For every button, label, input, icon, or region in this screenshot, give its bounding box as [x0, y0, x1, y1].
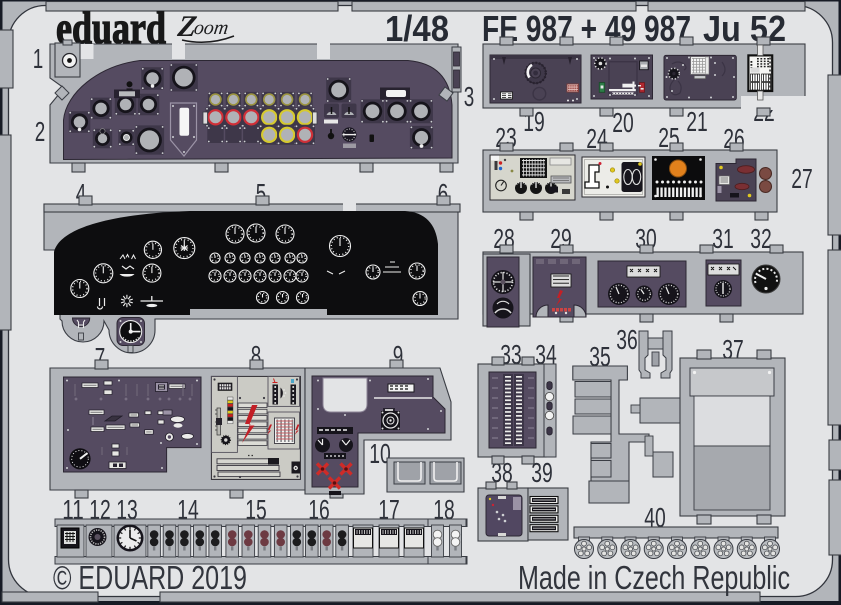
svg-text:3: 3 — [464, 81, 475, 112]
svg-text:2: 2 — [35, 116, 46, 147]
svg-text:Ju 52: Ju 52 — [703, 8, 786, 49]
svg-text:20: 20 — [612, 107, 634, 138]
svg-text:Made in Czech Republic: Made in Czech Republic — [518, 559, 790, 596]
svg-text:27: 27 — [791, 163, 813, 194]
svg-text:1: 1 — [33, 43, 44, 74]
svg-text:© EDUARD 2019: © EDUARD 2019 — [53, 559, 247, 596]
svg-text:21: 21 — [686, 106, 708, 137]
svg-text:32: 32 — [750, 223, 772, 254]
svg-text:31: 31 — [712, 223, 734, 254]
svg-text:1/48: 1/48 — [385, 8, 449, 49]
svg-text:oom: oom — [192, 17, 229, 39]
svg-text:36: 36 — [616, 324, 638, 355]
